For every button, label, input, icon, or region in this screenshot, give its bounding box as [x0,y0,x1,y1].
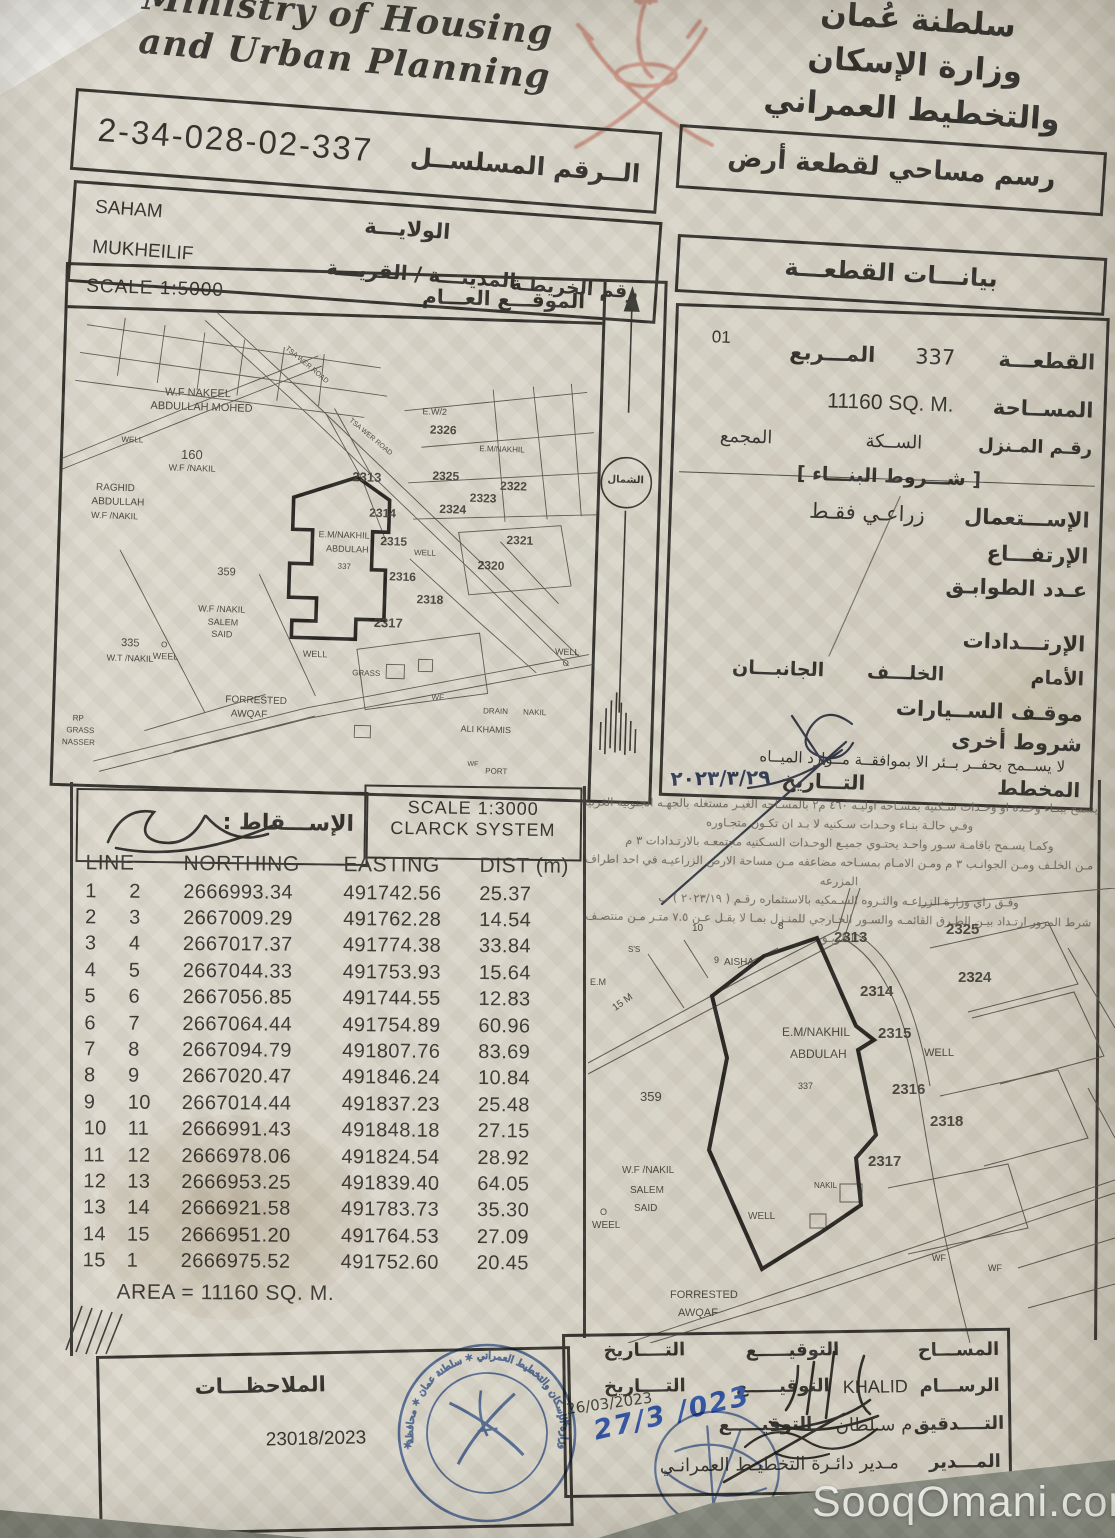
map-label: W.F /NAKIL [198,604,245,614]
map-label: WEEL [592,1221,620,1231]
table-row: 11122666978.06491824.5428.92 [83,1142,569,1172]
map-label: WF [988,1264,1002,1273]
map-label: 2315 [380,535,407,548]
map-label: W.F /NAKIL [622,1166,674,1176]
col-line: LINE [85,851,175,876]
table-cell: 491846.24 [342,1067,470,1091]
map-label: 9 [714,956,719,965]
table-cell: 491824.54 [341,1146,469,1170]
map-label: AISHA [724,958,754,968]
table-cell: 10 [128,1091,174,1114]
signature-label-1: التوقيـــــع [745,1339,839,1361]
scanned-survey-document: Ministry of Housing and Urban Planning س… [0,0,1115,1538]
table-cell: 491762.28 [343,908,471,932]
map-label: GRASS [352,669,380,678]
map-label: 2325 [432,470,459,483]
general-location-map-panel: SCALE 1:5000 الموقـــع العـــام [50,262,668,805]
table-cell: 12 [83,1170,119,1193]
table-cell: 64.05 [477,1173,567,1197]
projection-label: الإســـقاط : [222,810,354,837]
map-label: DRAIN [483,707,508,716]
serial-number-label: الــرقم المسلســل [409,142,641,188]
manager-title: مـدير دائـرة التخطيـط العمرانـي [660,1452,899,1476]
col-easting: EASTING [343,853,471,878]
map-label: 337 [337,563,351,571]
col-northing: NORTHING [183,852,335,877]
map-label: SAID [634,1204,657,1214]
table-cell: 27.15 [478,1120,568,1144]
table-cell: 8 [84,1065,120,1088]
draftsman-name: KHALID [843,1376,908,1398]
table-cell: 2666951.20 [181,1224,333,1248]
map-label: ABDULAH [790,1048,847,1060]
map-label: 2324 [439,503,466,516]
map-label: 2313 [352,470,381,484]
plot-info-title: بيانـــات القطعـــة [679,237,1104,299]
north-arrow-icon [591,282,659,795]
table-cell: 6 [128,986,174,1009]
map-label: E.W/2 [422,407,447,417]
date-label-1: التــــاريخ [603,1339,685,1361]
map-label: AWQAF [231,709,268,720]
wilayat-value: SAHAM [94,197,163,224]
table-cell: 491848.18 [342,1119,470,1143]
table-row: 13142666921.58491783.7335.30 [83,1195,569,1225]
map-label: TSA WER ROAD [284,345,330,385]
draftsman-label: الرســـام [919,1375,1000,1397]
table-map-divider-line [583,786,586,1338]
scan-corner-paper-edge [0,0,160,95]
reference-number: 23018/2023 [266,1427,367,1451]
table-row: 562667056.85491744.5512.83 [84,984,570,1014]
table-cell: 2667056.85 [182,986,334,1010]
left-border-line [70,782,73,1356]
table-cell: 2667064.44 [182,1013,334,1037]
table-cell: 20.45 [477,1252,567,1276]
table-row: 342667017.37491774.3833.84 [85,931,571,961]
table-cell: 3 [85,933,121,956]
map-label: 160 [181,448,203,462]
map-label: E.M/NAKHIL [318,530,369,541]
table-cell: 1 [127,1250,173,1273]
table-cell: 33.84 [479,936,569,960]
map-label: PORT [485,767,507,776]
table-cell: 14 [127,1197,173,1220]
map-label: W.T /NAKIL [106,653,153,663]
map-label: O [161,641,167,649]
table-cell: 5 [84,986,120,1009]
map-label: ABDULLAH MOHED [150,401,252,415]
map-label: 2315 [878,1026,911,1041]
table-row: 1512666975.52491752.6020.45 [83,1248,569,1278]
map1-scale-label: SCALE 1:5000 [86,276,224,302]
table-cell: 2667094.79 [182,1039,334,1063]
table-cell: 12.83 [478,988,568,1012]
projection-scale: SCALE 1:3000 [366,787,580,821]
table-cell: 491837.23 [342,1093,470,1117]
table-row: 9102667014.44491837.2325.48 [84,1089,570,1119]
table-cell: 5 [129,959,175,982]
table-row: 14152666951.20491764.5327.09 [83,1221,569,1251]
table-cell: 28.92 [477,1147,567,1171]
table-cell: 2666975.52 [181,1250,333,1274]
table-cell: 2666921.58 [181,1197,333,1221]
table-cell: 491807.76 [342,1040,470,1064]
map-label: 15 M [611,992,635,1013]
table-cell: 10 [84,1118,120,1141]
table-row: 452667044.33491753.9315.64 [85,957,571,987]
map-label: WELL [748,1212,775,1222]
audit-name: م سـلطان [836,1414,913,1436]
table-cell: 27.09 [477,1226,567,1250]
table-cell: 2667009.29 [183,907,335,931]
table-cell: 15 [127,1223,173,1246]
map-label: 337 [798,1082,813,1091]
coordinates-rows: 122666993.34491742.5625.37232667009.2949… [83,878,572,1277]
table-row: 782667094.79491807.7683.69 [84,1037,570,1067]
notes-label: الملاحظـــات [194,1372,326,1399]
table-row: 10112666991.43491848.1827.15 [84,1116,570,1146]
map-label: 2323 [470,492,497,505]
map-label: WF [431,694,444,702]
map-label: FORRESTED [670,1290,738,1301]
map-label: W.F NAKEEL [165,387,231,400]
table-row: 672667064.44491754.8960.96 [84,1010,570,1040]
area-note: AREA = 11160 SQ. M. [116,1280,568,1307]
map-label: 2326 [430,424,457,437]
map-label: 2314 [369,507,396,520]
map2-labels-layer: 10823132325232423142315WELL231623182317E… [588,888,1115,1343]
table-row: 12132666953.25491839.4064.05 [83,1169,569,1199]
map-label: E.M/NAKHIL [479,445,525,454]
table-cell: 2666953.25 [181,1171,333,1195]
map-label: ALI KHAMIS [460,725,511,736]
table-cell: 14 [83,1223,119,1246]
map-label: 8 [778,922,784,932]
map-label: 335 [121,638,140,650]
table-cell: 1 [85,880,121,903]
manager-label: المـــدير [929,1451,1001,1473]
map-label: NAKIL [523,709,546,718]
table-cell: 491744.55 [342,987,470,1011]
table-row: 892667020.47491846.2410.84 [84,1063,570,1093]
table-cell: 491742.56 [343,882,471,906]
table-cell: 14.54 [479,909,569,933]
map-label: FORRESTED [225,695,287,707]
table-cell: 8 [128,1039,174,1062]
table-row: 232667009.29491762.2814.54 [85,905,571,935]
coordinates-table: LINE NORTHING EASTING DIST (m) 122666993… [82,848,571,1307]
map-label: NAKIL [814,1182,837,1190]
table-cell: 2666978.06 [181,1145,333,1169]
map-label: 2322 [500,480,527,493]
map-label: AWQAF [678,1308,718,1319]
table-cell: 9 [84,1091,120,1114]
map-label: 2325 [946,922,979,937]
map-label: GRASS [66,726,94,735]
watermark: SooqOmani.com [812,1478,1115,1527]
table-cell: 7 [84,1038,120,1061]
pen-stroke [662,306,1107,808]
table-cell: 2666991.43 [182,1118,334,1142]
table-cell: 15 [83,1249,119,1272]
table-cell: 15.64 [479,962,569,986]
map-label: NASSER [62,738,95,747]
table-cell: 35.30 [477,1199,567,1223]
notes-box: الملاحظـــات 23018/2023 [96,1346,574,1536]
projection-system: CLARCK SYSTEM [366,818,580,842]
table-cell: 13 [127,1171,173,1194]
coordinates-table-header: LINE NORTHING EASTING DIST (m) [85,848,571,881]
table-row: 122666993.34491742.5625.37 [85,878,571,908]
wilayat-label: الولايـــة [364,214,452,244]
map-label: WELL [924,1048,954,1059]
map-label: ABDULLAH [91,497,144,509]
map-label: 2318 [930,1114,963,1129]
map-label: WF [467,761,478,768]
map-label: S'S [628,946,640,954]
map-label: O [600,1208,607,1217]
table-cell: 491783.73 [341,1198,469,1222]
map-label: W.F /NAKIL [168,463,215,473]
table-cell: 3 [129,907,175,930]
map1-location-label: الموقـــع العـــام [422,284,586,313]
north-label: الشمال [607,474,644,486]
map1-labels-layer: W.F NAKEELABDULLAH MOHEDWELL160W.F /NAKI… [53,308,602,795]
table-cell: 491754.89 [342,1014,470,1038]
detail-map-panel: 10823132325232423142315WELL231623182317E… [588,888,1115,1343]
map-label: 2324 [958,970,991,985]
map-label: 359 [217,567,236,579]
table-cell: 2666993.34 [183,881,335,905]
map-label: SALEM [630,1186,664,1196]
table-cell: 7 [128,1012,174,1035]
table-cell: 9 [128,1065,174,1088]
table-cell: 2 [129,880,175,903]
map-label: 2316 [892,1082,925,1097]
table-cell: 491774.38 [343,935,471,959]
map-label: WEEL [153,652,179,662]
table-cell: 13 [83,1197,119,1220]
map-label: O [562,660,568,668]
table-cell: 11 [83,1144,119,1167]
map-label: 2316 [389,570,416,583]
map1-drawing: W.F NAKEELABDULLAH MOHEDWELL160W.F /NAKI… [53,308,603,800]
map-label: WF [932,1254,946,1263]
table-cell: 4 [129,933,175,956]
map-label: E.M/NAKHIL [782,1026,850,1038]
map-label: WELL [414,549,436,558]
table-cell: 11 [128,1118,174,1141]
map-label: ABDULAH [326,544,369,554]
map-label: RP [73,714,84,722]
map-label: 2314 [860,984,893,999]
map-label: WELL [303,650,328,660]
map-label: 359 [640,1090,662,1103]
map-label: E.M [590,978,606,987]
table-cell: 25.37 [479,883,569,907]
map-label: W.F /NAKIL [91,511,138,521]
signature-label-2: التوقيـــــع [736,1375,830,1397]
table-cell: 83.69 [478,1041,568,1065]
map-label: 2317 [374,616,403,630]
table-cell: 491839.40 [341,1172,469,1196]
ministry-title-english: Ministry of Housing and Urban Planning [137,0,563,100]
table-cell: 12 [127,1144,173,1167]
map-label: 2320 [477,559,504,572]
table-cell: 60.96 [478,1015,568,1039]
audit-label: التــــدقيق [913,1413,1004,1435]
ministry-title-arabic: سلطنة عُمانوزارة الإسكانوالتخطيط العمران… [736,0,1095,145]
map-label: 10 [692,924,703,934]
table-cell: 2 [85,906,121,929]
table-cell: 10.84 [478,1067,568,1091]
table-cell: 6 [84,1012,120,1035]
map-label: 2321 [506,534,533,547]
table-cell: 25.48 [478,1094,568,1118]
table-cell: 2667017.37 [183,933,335,957]
table-cell: 491764.53 [341,1225,469,1249]
plot-info-title-box: بيانـــات القطعـــة [675,234,1108,316]
map-label: 2317 [868,1154,901,1169]
town-value: MUKHEILIF [91,237,194,266]
table-cell: 4 [85,959,121,982]
surveyor-label: المســـاح [918,1339,1000,1361]
map-label: 2318 [416,593,443,606]
map-label: TSA WER ROAD [348,417,394,457]
map-label: 2313 [834,930,867,945]
plot-data-box: 01 القطعـــة 337 المـــربع المســاحة 111… [659,303,1110,811]
table-cell: 2667014.44 [182,1092,334,1116]
map-label: SAID [211,630,232,640]
table-cell: 491752.60 [341,1251,469,1275]
map-label: WELL [555,648,580,658]
signature-label-3: التوقيـــــع [718,1414,812,1436]
table-cell: 2667020.47 [182,1065,334,1089]
table-cell: 2667044.33 [183,960,335,984]
map-label: SALEM [208,618,239,628]
map-label: WELL [121,436,143,445]
serial-number-value: 2-34-028-02-337 [97,111,375,170]
table-cell: 491753.93 [343,961,471,985]
map-label: RAGHID [96,483,135,494]
col-dist: DIST (m) [479,854,569,879]
